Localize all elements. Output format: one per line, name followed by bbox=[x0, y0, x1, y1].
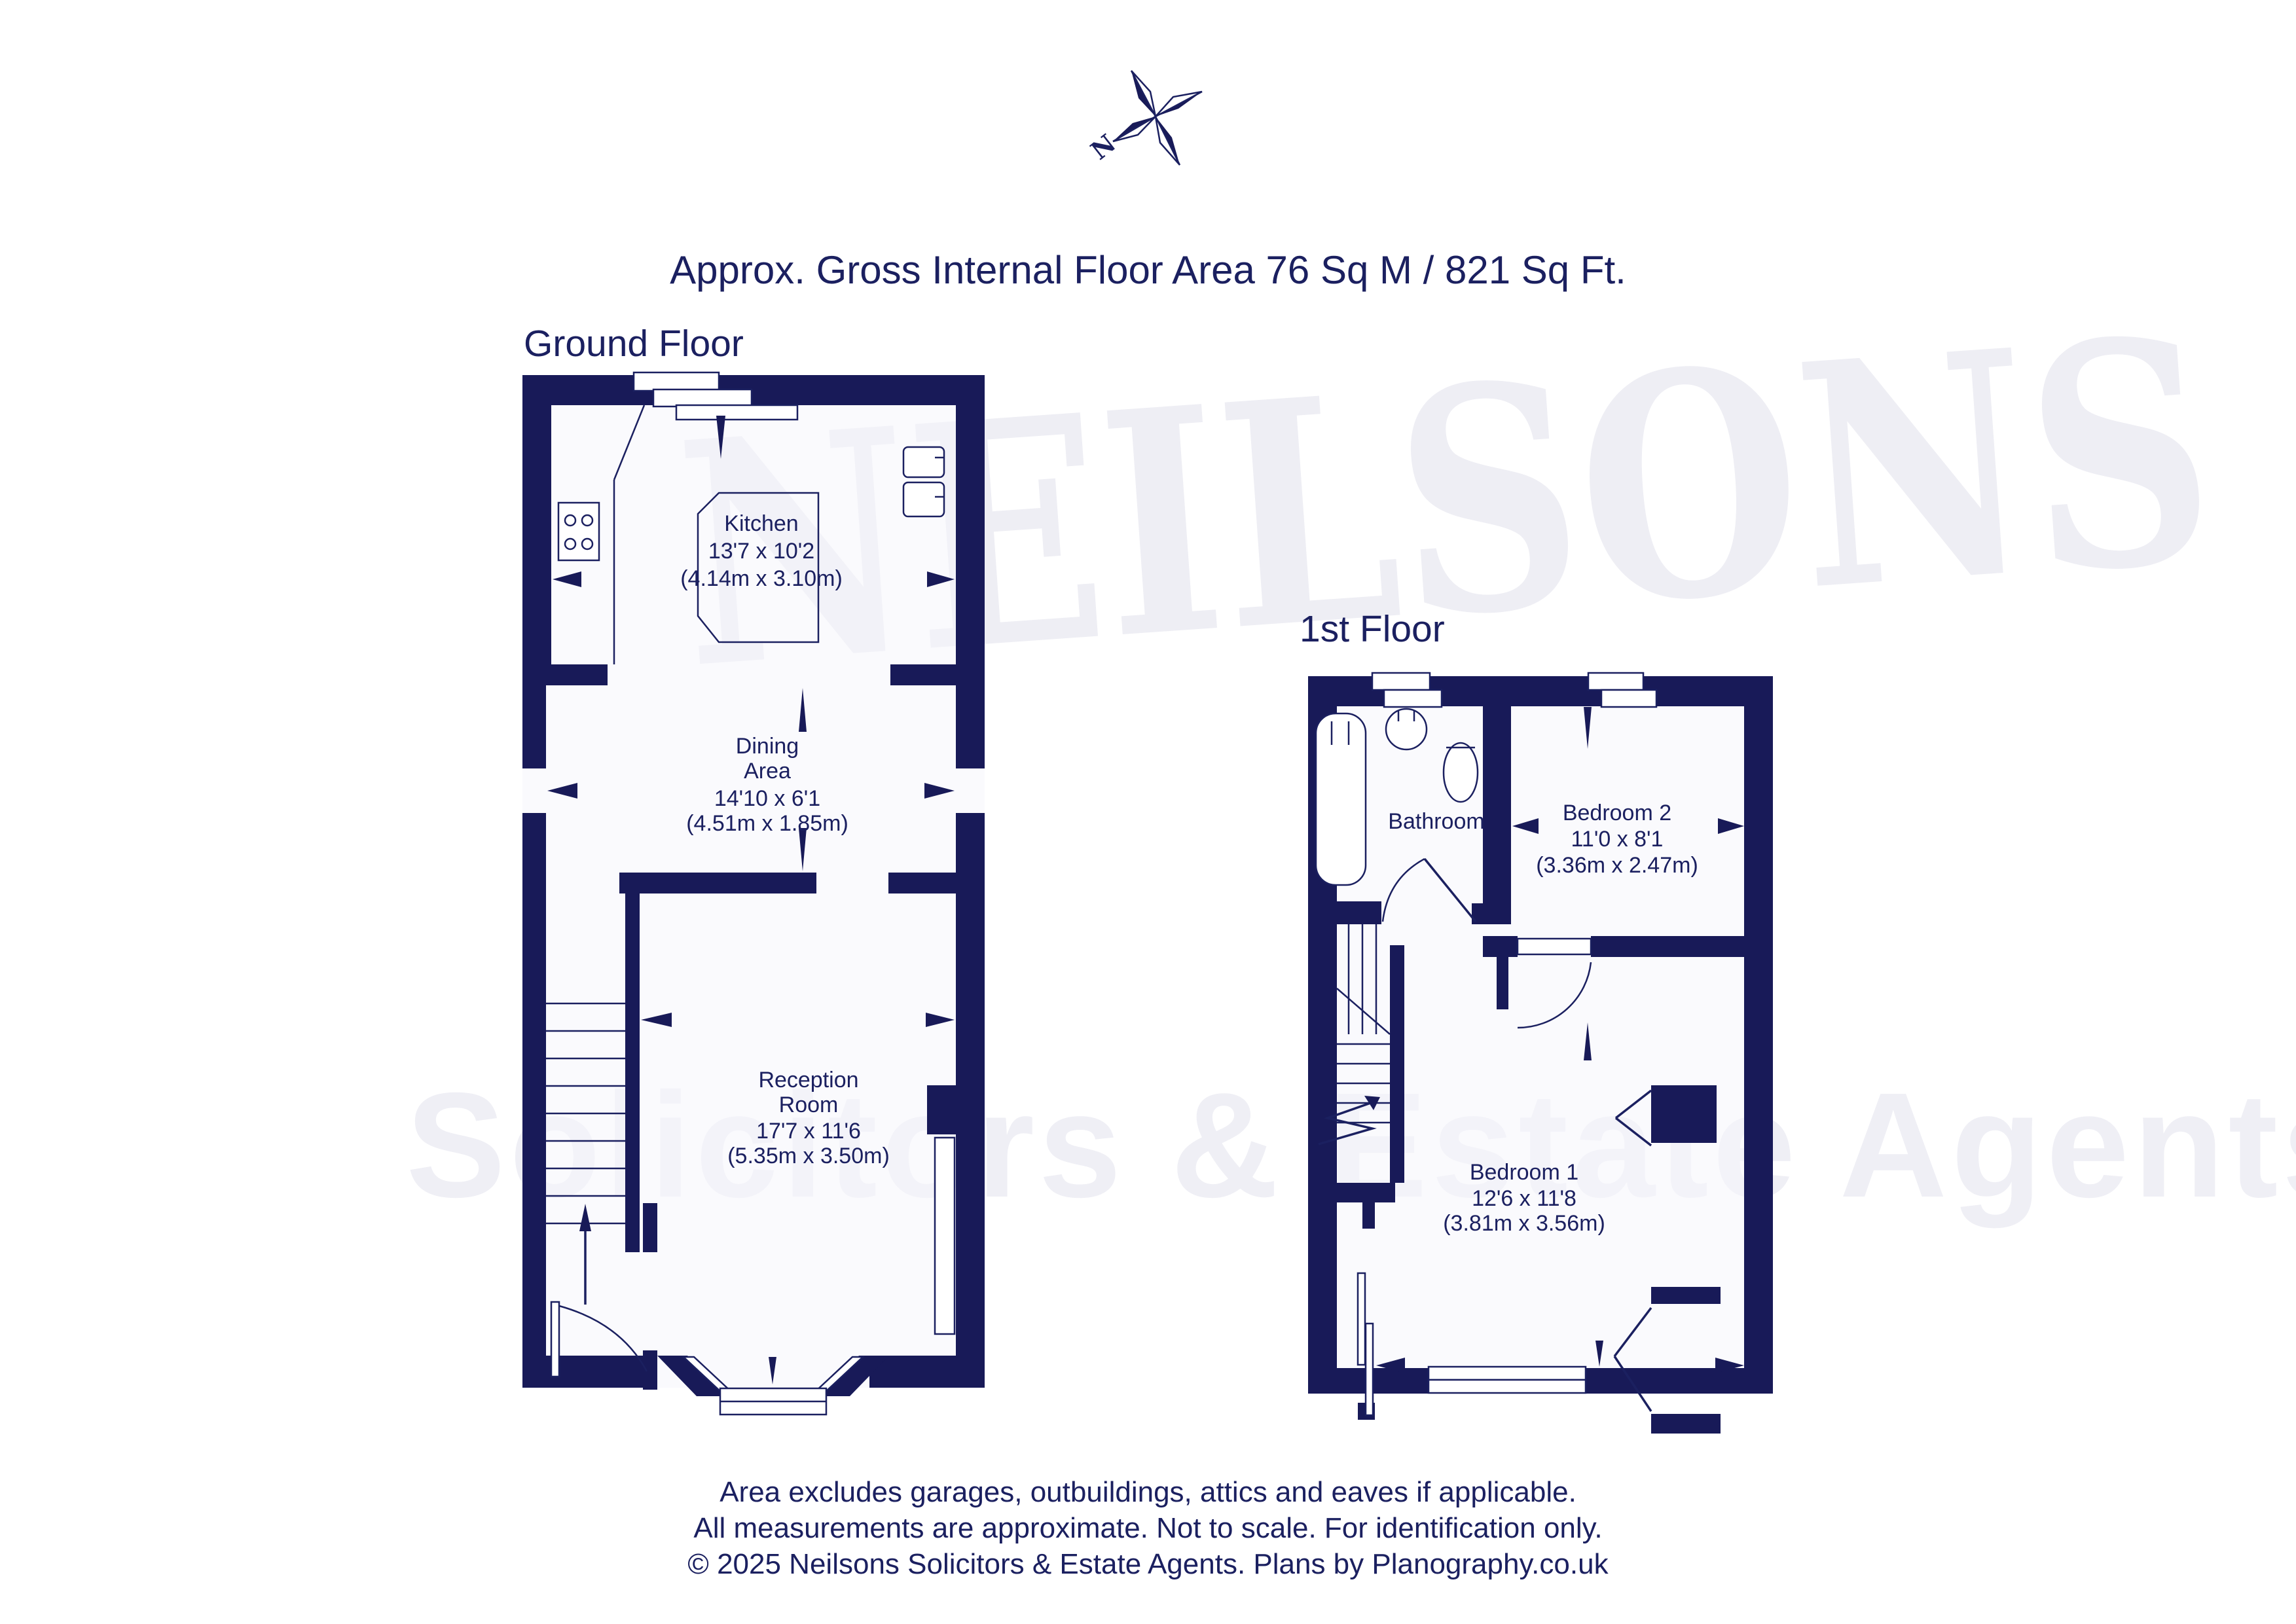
reception-label-line2: Room bbox=[779, 1092, 839, 1117]
compass-north-label: N bbox=[1085, 128, 1121, 166]
dining-label-line1: Dining bbox=[736, 734, 799, 759]
kitchen-label: Kitchen bbox=[724, 511, 798, 536]
footer-disclaimer: Area excludes garages, outbuildings, att… bbox=[0, 1474, 2296, 1582]
dining-label-line2: Area bbox=[744, 759, 791, 784]
basin-icon bbox=[1386, 709, 1427, 749]
footer-line-1: Area excludes garages, outbuildings, att… bbox=[0, 1474, 2296, 1510]
bedroom2-label: Bedroom 2 bbox=[1563, 801, 1671, 825]
reception-dims-imperial: 17'7 x 11'6 bbox=[756, 1119, 861, 1144]
page-title: Approx. Gross Internal Floor Area 76 Sq … bbox=[0, 247, 2296, 293]
fridge-icon bbox=[903, 447, 944, 477]
first-floor-plan: Bathroom Bedroom 2 11'0 x 8'1 (3.36m x 2… bbox=[1308, 661, 1773, 1401]
bedroom1-label: Bedroom 1 bbox=[1470, 1160, 1578, 1185]
bedroom2-door-leaf bbox=[1518, 939, 1591, 954]
bedroom1-dims-metric: (3.81m x 3.56m) bbox=[1443, 1211, 1605, 1236]
dining-dims-imperial: 14'10 x 6'1 bbox=[714, 786, 820, 811]
freezer-icon bbox=[903, 482, 944, 516]
bathtub-icon bbox=[1316, 713, 1366, 885]
ground-floor-plan: Kitchen 13'7 x 10'2 (4.14m x 3.10m) Dini… bbox=[522, 375, 985, 1437]
reception-label-line1: Reception bbox=[758, 1068, 858, 1092]
radiator-panel-2 bbox=[1366, 1324, 1373, 1415]
first-floor-label: 1st Floor bbox=[1300, 607, 1445, 651]
hob-icon bbox=[558, 503, 599, 560]
first-floor-footprint bbox=[1308, 676, 1773, 1394]
dining-dims-metric: (4.51m x 1.85m) bbox=[686, 811, 848, 836]
bedroom2-dims-metric: (3.36m x 2.47m) bbox=[1536, 853, 1698, 878]
footer-line-3: © 2025 Neilsons Solicitors & Estate Agen… bbox=[0, 1546, 2296, 1582]
radiator bbox=[935, 1138, 955, 1334]
compass-star: N bbox=[1085, 71, 1202, 166]
toilet-icon bbox=[1444, 743, 1478, 802]
bedroom2-dims-imperial: 11'0 x 8'1 bbox=[1571, 827, 1664, 852]
front-door-leaf bbox=[551, 1302, 559, 1377]
compass-rose: N bbox=[1074, 46, 1244, 190]
ground-floor-label: Ground Floor bbox=[524, 322, 744, 365]
bedroom1-dims-imperial: 12'6 x 11'8 bbox=[1472, 1186, 1576, 1211]
footer-line-2: All measurements are approximate. Not to… bbox=[0, 1510, 2296, 1546]
reception-dims-metric: (5.35m x 3.50m) bbox=[727, 1144, 890, 1168]
bathroom-label: Bathroom bbox=[1388, 809, 1484, 834]
kitchen-dims-metric: (4.14m x 3.10m) bbox=[680, 566, 843, 591]
radiator-panel-1 bbox=[1358, 1273, 1365, 1365]
floorplan-page: NEILSONS Solicitors & Estate Agents N Ap… bbox=[0, 0, 2296, 1624]
kitchen-dims-imperial: 13'7 x 10'2 bbox=[708, 539, 814, 564]
